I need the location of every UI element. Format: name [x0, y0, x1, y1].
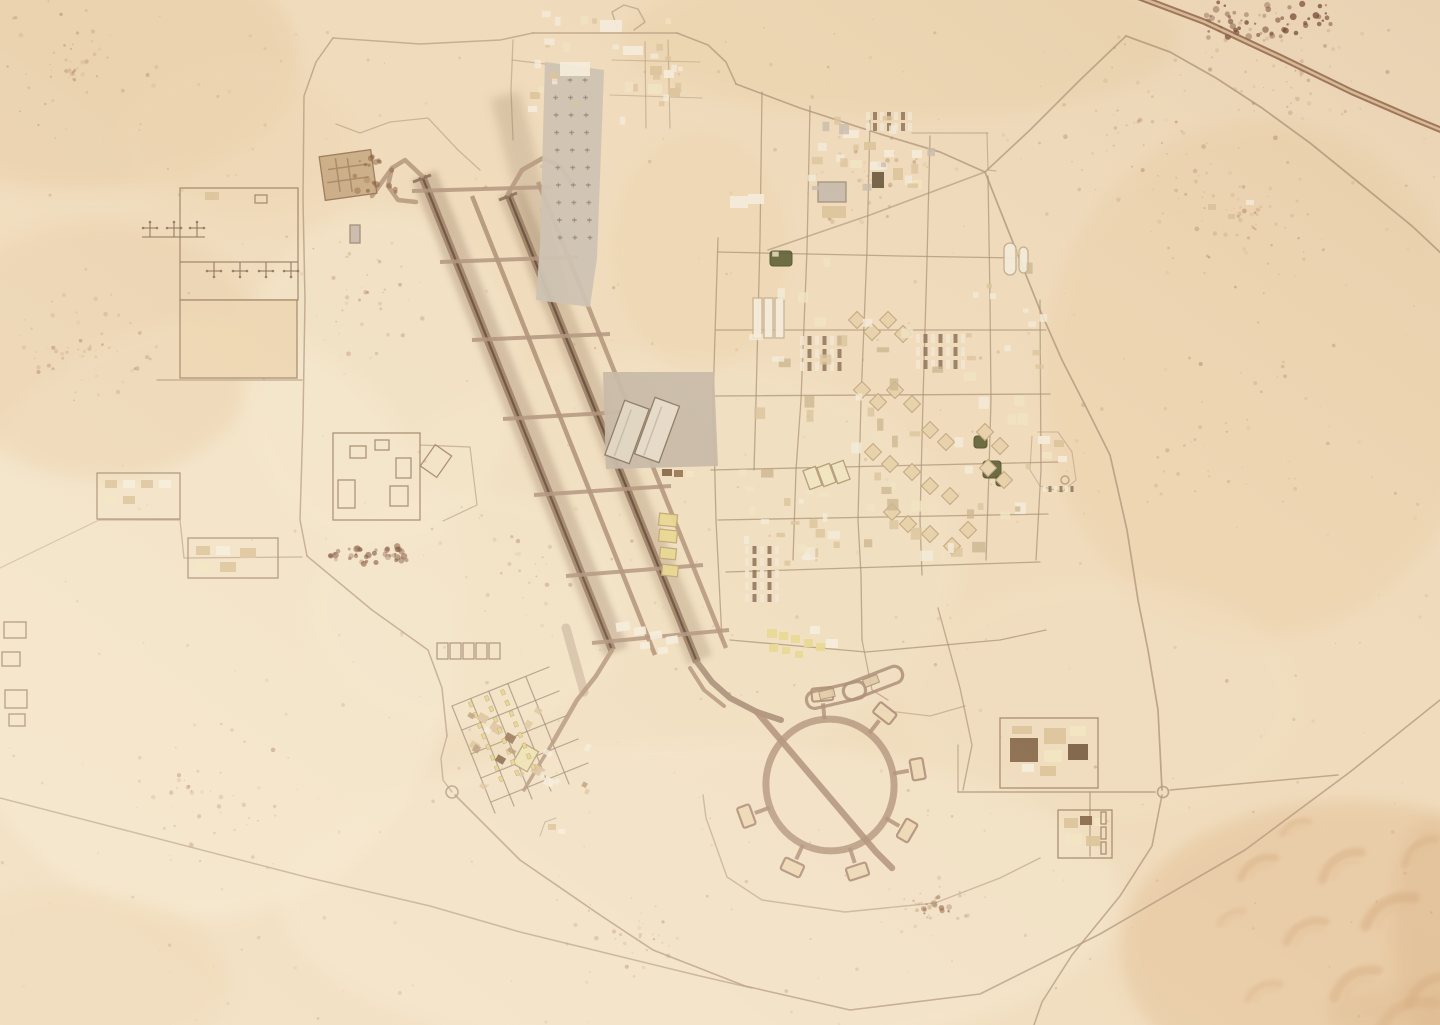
light-wash-overlay	[0, 0, 1440, 1025]
satellite-photo-airbase	[0, 0, 1440, 1025]
satellite-image-canvas	[0, 0, 1440, 1025]
